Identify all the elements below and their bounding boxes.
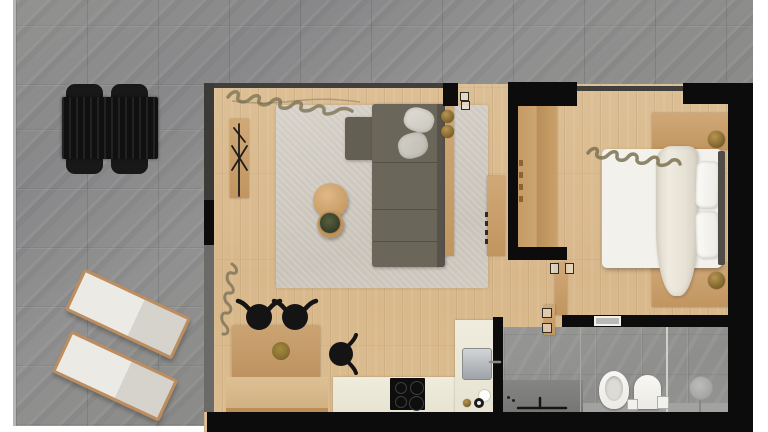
wall-entry-block xyxy=(443,83,458,106)
counter-knob-brass xyxy=(463,399,471,407)
brass-lamp xyxy=(708,272,725,289)
kitchen-sink xyxy=(462,348,492,380)
wall-kitchen-divider xyxy=(493,317,503,417)
wall-hall-top xyxy=(508,82,577,106)
bathroom-door-hinge xyxy=(542,308,552,318)
flush-plate xyxy=(657,396,669,409)
vanity-accessory-dot xyxy=(512,399,515,402)
wall-left-upper xyxy=(204,84,214,204)
cooktop-burner xyxy=(395,382,407,394)
sideboard xyxy=(230,119,249,198)
media-panel xyxy=(487,176,505,256)
bedroom-door-hinge xyxy=(550,263,559,274)
toilet-bowl xyxy=(605,376,623,401)
headboard xyxy=(718,151,725,265)
cooktop-burner xyxy=(410,381,424,395)
shower-divider-line xyxy=(580,327,581,413)
outdoor-dining-table xyxy=(62,97,158,159)
wall-bedroom-left xyxy=(508,104,518,260)
rain-shower-head xyxy=(689,376,713,400)
wall-bottom xyxy=(207,412,753,432)
sofa-seat-seam xyxy=(373,209,437,210)
floor-plan xyxy=(0,0,768,432)
wall-niche xyxy=(594,316,621,326)
terrace-floor-top xyxy=(16,0,753,86)
duvet xyxy=(656,146,698,296)
bathroom-door-hinge xyxy=(542,323,552,333)
wall-right xyxy=(728,83,753,432)
sofa-seat-seam xyxy=(373,241,437,242)
potted-plant xyxy=(320,213,340,233)
wall-bathroom-top xyxy=(562,315,728,327)
window-wall-top-bedroom xyxy=(577,86,683,91)
wall-bedroom-corner xyxy=(508,247,567,260)
charger-plate xyxy=(272,342,290,360)
terrace-door-wall xyxy=(204,245,214,412)
wardrobe xyxy=(517,104,557,250)
sofa-seat-seam xyxy=(373,162,437,163)
counter-knob-black xyxy=(474,398,484,408)
cooktop-burner xyxy=(395,396,407,408)
bed-pillow xyxy=(695,211,720,259)
wall-left-segment xyxy=(204,200,214,245)
flush-plate xyxy=(627,399,638,410)
brass-lamp xyxy=(441,125,454,138)
entry-door-hinge xyxy=(461,101,470,110)
vanity-accessory-dot xyxy=(507,396,510,399)
dining-platform xyxy=(226,377,328,409)
bed-pillow xyxy=(695,161,720,209)
cooktop-burner xyxy=(409,396,424,411)
brass-lamp xyxy=(708,131,725,148)
bedroom-door-hinge xyxy=(565,263,574,274)
vanity-counter xyxy=(503,380,583,415)
window-wall-top xyxy=(204,83,458,88)
brass-lamp xyxy=(441,110,454,123)
entry-door-hinge xyxy=(460,92,469,101)
